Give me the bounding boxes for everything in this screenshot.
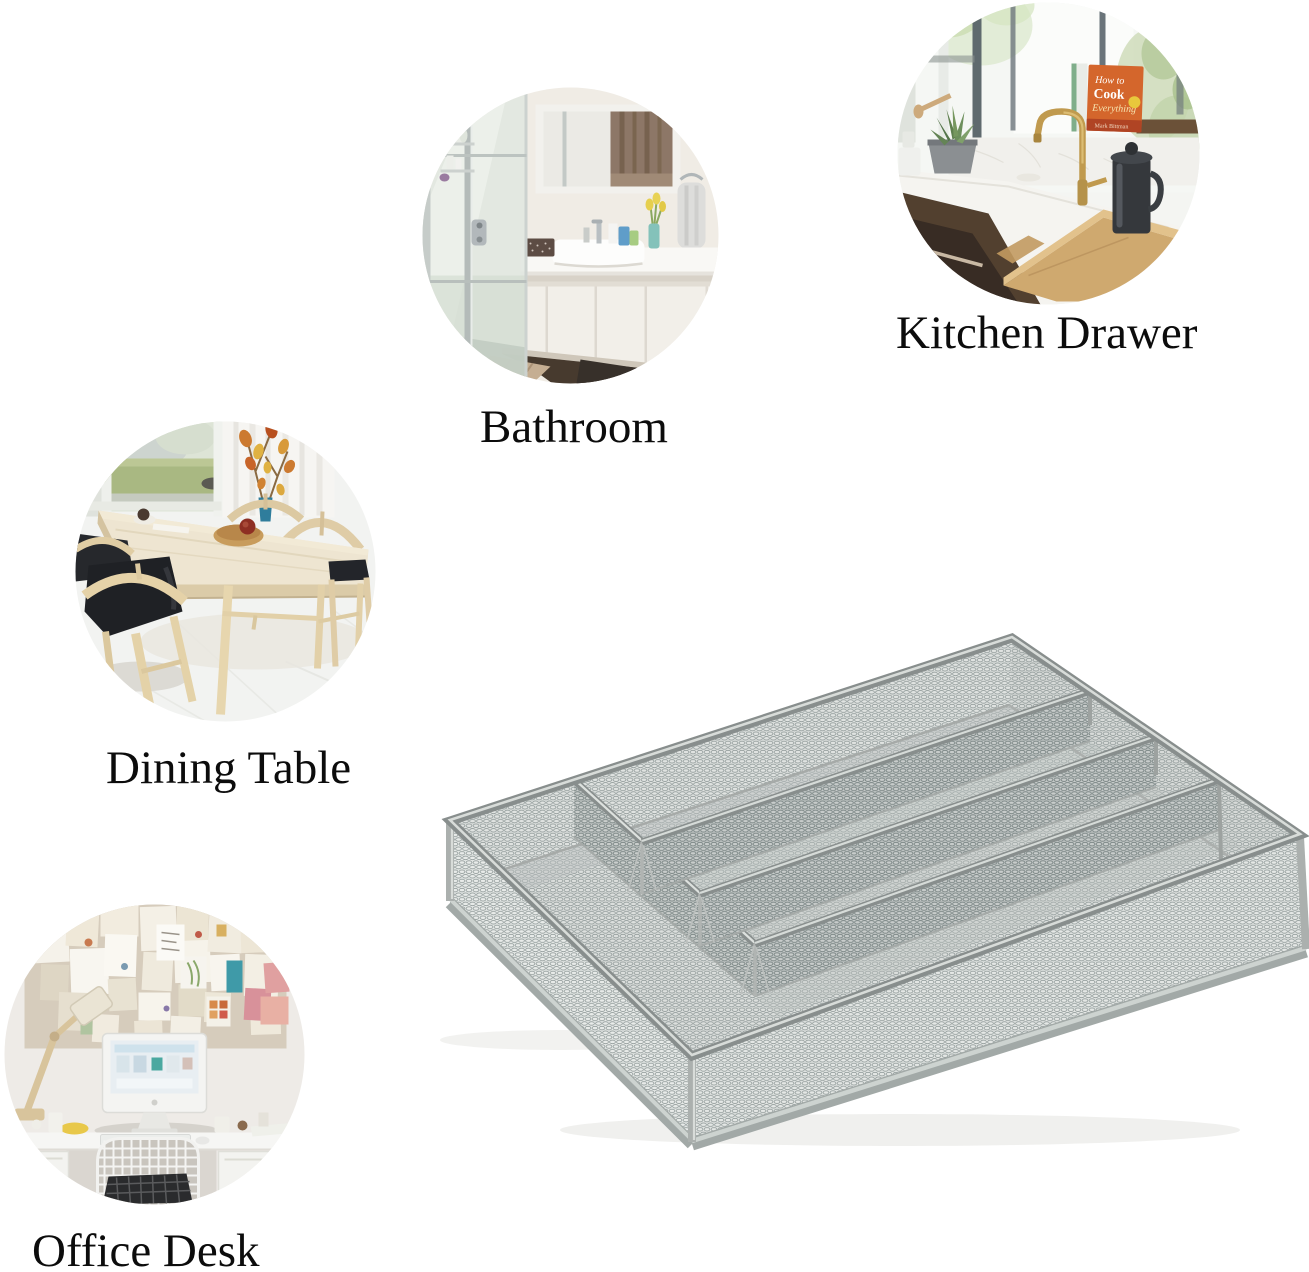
svg-text:Bathroom: Bathroom	[480, 401, 668, 453]
svg-text:Cook: Cook	[1093, 86, 1125, 102]
svg-text:Mark Bittman: Mark Bittman	[1094, 123, 1128, 130]
svg-text:Office Desk: Office Desk	[32, 1225, 260, 1272]
svg-text:Kitchen Drawer: Kitchen Drawer	[896, 307, 1198, 359]
svg-text:Dining Table: Dining Table	[106, 742, 351, 794]
